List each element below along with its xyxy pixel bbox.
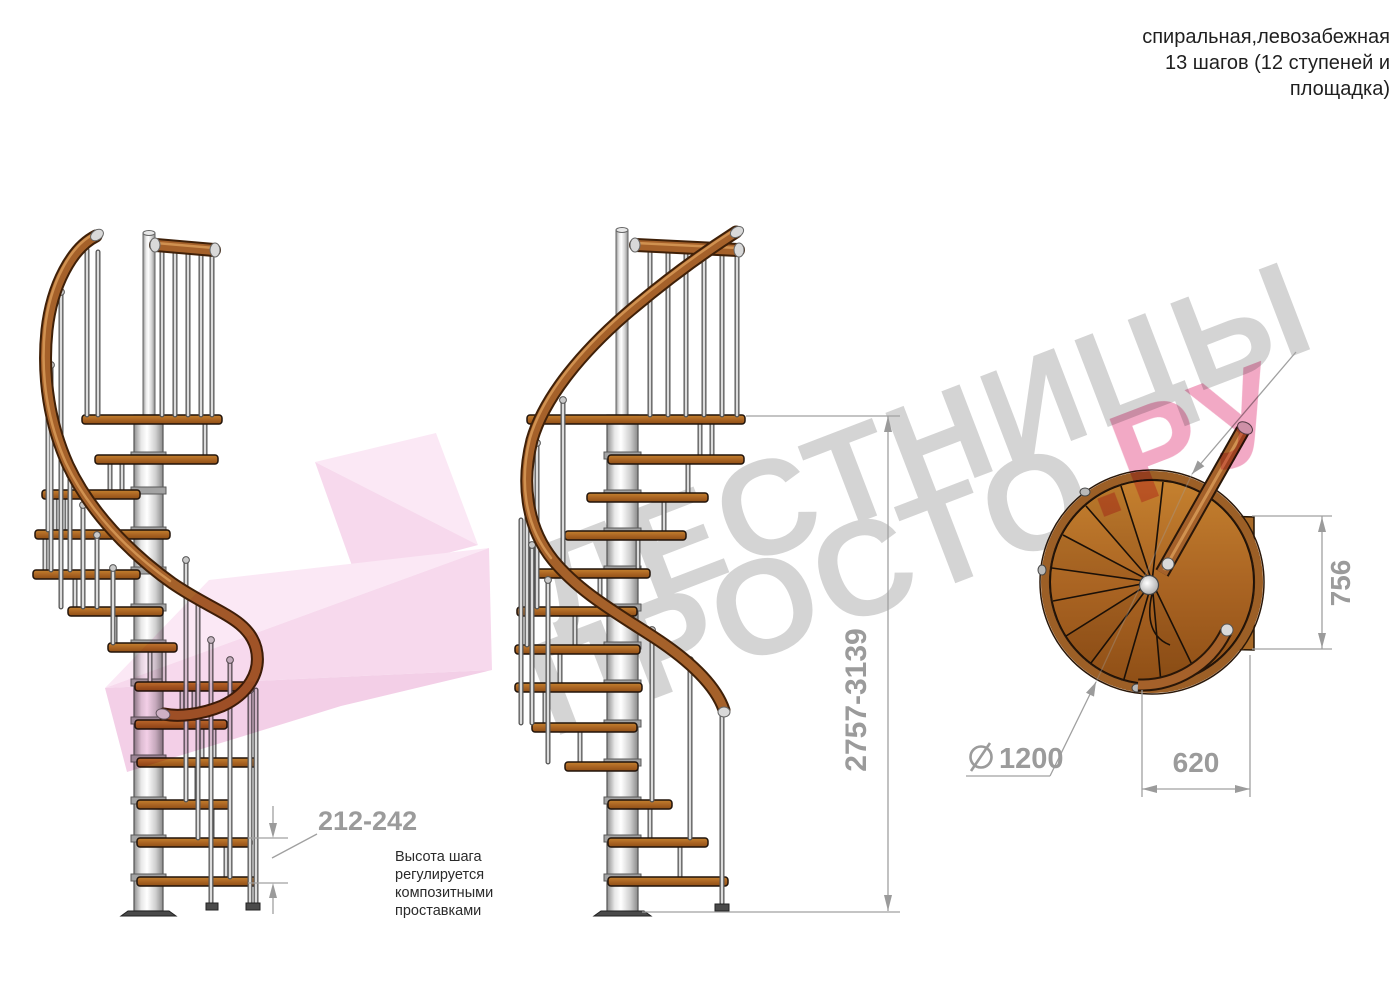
dim-diameter: 1200: [999, 743, 1064, 775]
staircase-front-view: [33, 227, 260, 916]
title-line-1: спиральная,левозабежная: [1142, 26, 1390, 48]
note-line-1: Высота шага: [395, 849, 482, 865]
title-line-3: площадка): [1290, 78, 1390, 100]
diameter-icon: [971, 743, 992, 771]
drawing-title: спиральная,левозабежная 13 шагов (12 сту…: [1142, 26, 1390, 100]
note-line-2: регулируется: [395, 867, 484, 883]
staircase-drawing: ЛЕСТНИЦЫ ПРОСТО: [0, 0, 1400, 1000]
note-line-3: композитными: [395, 885, 493, 901]
rail-end-cap: [150, 238, 160, 252]
dim-landing-depth: 620: [1173, 747, 1220, 778]
step-height-note: Высота шага регулируется композитными пр…: [395, 849, 493, 919]
top-balustrade-front: [150, 238, 220, 415]
handrail-cap-bottom: [718, 707, 730, 717]
note-line-4: проставками: [395, 903, 481, 919]
top-platform: [527, 415, 745, 424]
rail-end-cap: [630, 238, 640, 252]
dim-step-height: 212-242: [318, 806, 417, 836]
dim-landing-width: 756: [1325, 560, 1356, 607]
center-pole-top: [143, 233, 155, 418]
rail-end-cap: [734, 243, 744, 257]
title-line-2: 13 шагов (12 ступеней и: [1165, 52, 1390, 74]
center-pole-plan: [1140, 576, 1159, 595]
drawing-page: ЛЕСТНИЦЫ ПРОСТО: [0, 0, 1400, 1000]
rail-end-cap: [210, 243, 220, 257]
dim-total-height: 2757-3139: [840, 628, 873, 771]
